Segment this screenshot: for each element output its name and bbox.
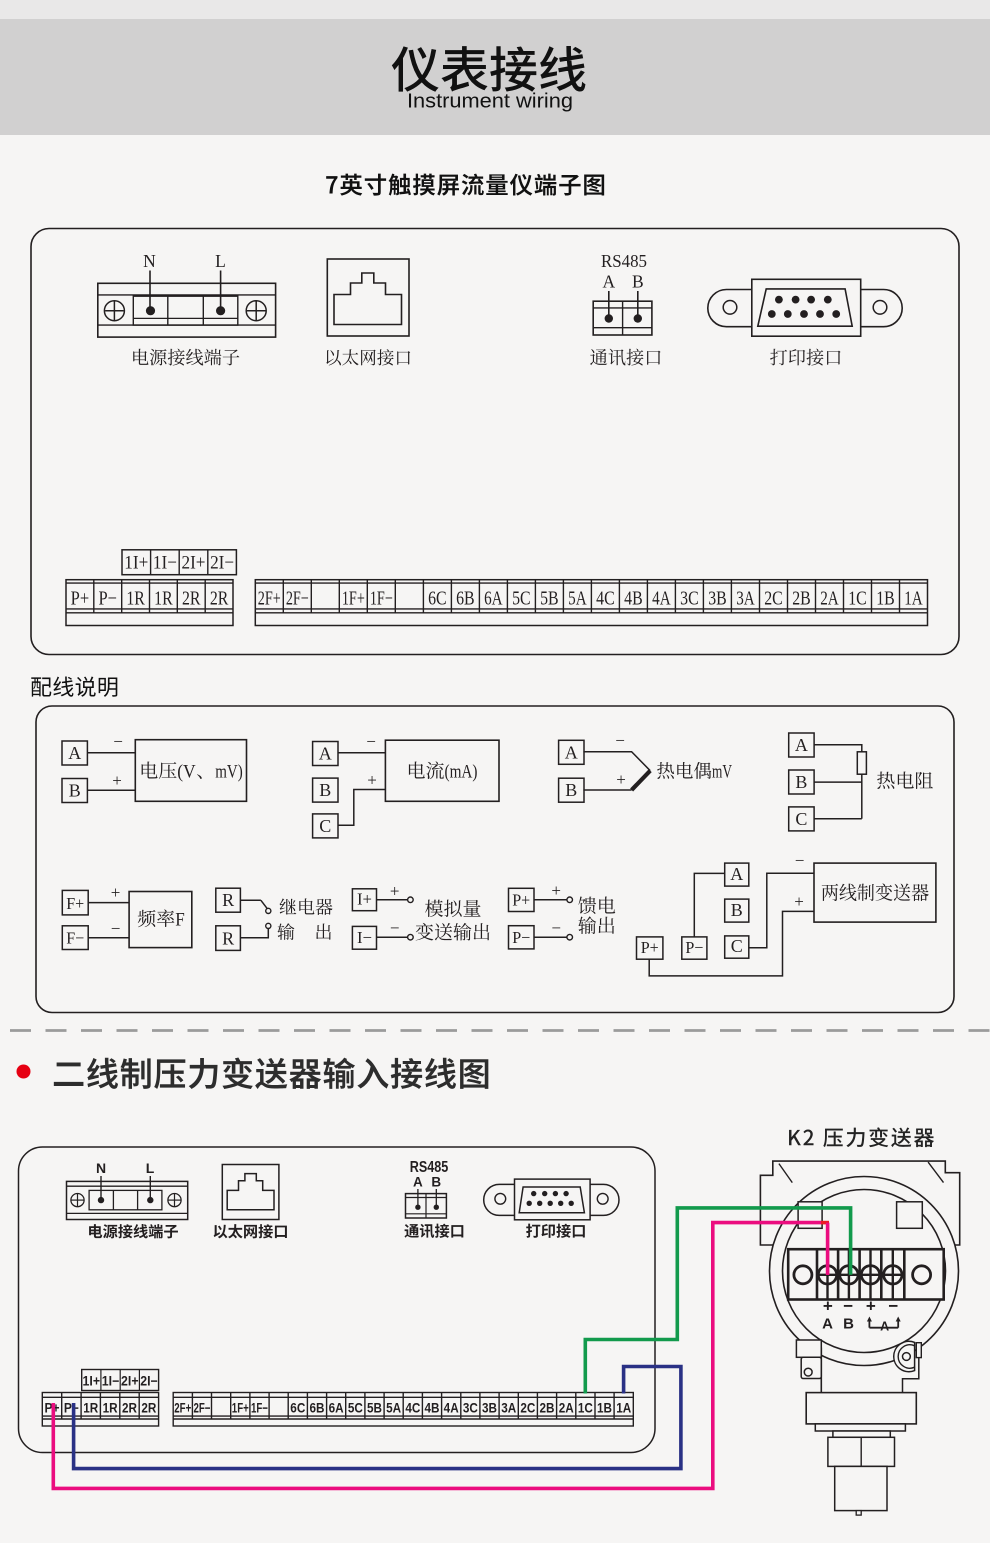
svg-text:1A: 1A [904,588,923,610]
svg-text:3B: 3B [708,588,727,610]
svg-text:P−: P− [99,588,118,610]
svg-text:2R: 2R [141,1401,156,1416]
svg-text:1F+: 1F+ [342,588,365,610]
svg-text:2B: 2B [792,588,811,610]
svg-text:+: + [866,1297,876,1316]
svg-text:2F+: 2F+ [174,1401,191,1416]
svg-text:N: N [143,251,156,271]
svg-text:2R: 2R [210,588,229,610]
svg-text:1R: 1R [103,1401,118,1416]
svg-text:P+: P+ [512,891,530,910]
svg-text:1I−: 1I− [102,1374,120,1389]
svg-text:I−: I− [357,928,372,947]
svg-text:B: B [565,780,577,800]
svg-text:4C: 4C [596,588,615,610]
svg-text:A: A [730,864,743,884]
svg-text:1F−: 1F− [370,588,393,610]
svg-text:−: − [366,732,376,751]
svg-text:2B: 2B [540,1401,555,1416]
svg-text:I+: I+ [357,890,372,909]
svg-text:(V: (V [177,762,196,783]
svg-text:(mA): (mA) [445,762,478,783]
svg-text:RS485: RS485 [601,251,647,271]
svg-text:A: A [602,272,615,292]
svg-text:+: + [794,892,804,911]
svg-text:−: − [843,1297,853,1316]
svg-text:1I−: 1I− [153,553,177,574]
svg-text:mV: mV [712,762,732,783]
svg-text:−: − [888,1297,898,1316]
svg-text:3B: 3B [482,1401,497,1416]
svg-text:B: B [795,772,807,792]
svg-text:mV): mV) [215,762,243,783]
svg-text:5C: 5C [348,1401,363,1416]
svg-text:P−: P− [685,938,703,957]
svg-text:−: − [113,732,123,751]
svg-text:B: B [843,1316,854,1333]
svg-text:1B: 1B [597,1401,612,1416]
svg-text:5B: 5B [540,588,559,610]
svg-text:1F−: 1F− [251,1401,268,1416]
svg-text:+: + [111,883,121,902]
svg-text:P−: P− [512,928,530,947]
svg-text:L: L [146,1160,155,1176]
svg-text:6C: 6C [290,1401,305,1416]
svg-text:C: C [731,936,743,956]
svg-text:5A: 5A [386,1401,401,1416]
svg-text:−: − [390,919,400,938]
svg-text:4B: 4B [624,588,643,610]
svg-text:A: A [822,1316,833,1333]
svg-text:2A: 2A [559,1401,574,1416]
svg-text:2I−: 2I− [210,553,234,574]
svg-text:3C: 3C [463,1401,478,1416]
svg-text:B: B [431,1175,441,1190]
svg-text:+: + [823,1297,833,1316]
svg-text:RS485: RS485 [410,1159,449,1176]
svg-text:1C: 1C [578,1401,593,1416]
svg-text:5A: 5A [568,588,587,610]
svg-text:A: A [795,735,808,755]
svg-text:+: + [616,770,626,789]
svg-text:2I+: 2I+ [121,1374,139,1389]
svg-text:2C: 2C [764,588,783,610]
svg-text:+: + [551,881,561,900]
svg-text:2R: 2R [182,588,201,610]
svg-text:1F+: 1F+ [232,1401,249,1416]
svg-text:1C: 1C [848,588,867,610]
svg-text:+: + [390,882,400,901]
svg-text:6B: 6B [456,588,475,610]
svg-text:2F+: 2F+ [258,588,281,610]
svg-text:+: + [367,771,377,790]
svg-text:1R: 1R [154,588,173,610]
svg-text:3A: 3A [736,588,755,610]
svg-text:B: B [632,272,644,292]
svg-text:F−: F− [66,929,84,948]
svg-text:6C: 6C [428,588,447,610]
svg-text:1R: 1R [83,1401,98,1416]
svg-text:4A: 4A [444,1401,459,1416]
svg-text:B: B [319,780,331,800]
svg-text:3C: 3C [680,588,699,610]
svg-text:2C: 2C [520,1401,535,1416]
svg-text:1I+: 1I+ [83,1374,101,1389]
svg-text:6B: 6B [309,1401,324,1416]
svg-text:4B: 4B [425,1401,440,1416]
svg-text:4A: 4A [652,588,671,610]
svg-text:1R: 1R [126,588,145,610]
svg-text:L: L [215,251,226,271]
svg-text:−: − [551,919,561,938]
svg-text:2R: 2R [122,1401,137,1416]
svg-text:5C: 5C [512,588,531,610]
svg-text:6A: 6A [484,588,503,610]
svg-text:−: − [795,851,805,870]
svg-text:C: C [795,809,807,829]
svg-text:B: B [69,781,81,801]
svg-text:Instrument wiring: Instrument wiring [407,91,573,113]
svg-text:P+: P+ [71,588,90,610]
svg-text:2I+: 2I+ [182,553,206,574]
svg-text:6A: 6A [329,1401,344,1416]
svg-text:1B: 1B [876,588,895,610]
svg-text:2F−: 2F− [286,588,309,610]
svg-text:R: R [222,890,234,910]
svg-text:B: B [731,900,743,920]
svg-text:−: − [111,919,121,938]
svg-text:1A: 1A [616,1401,631,1416]
svg-text:3A: 3A [501,1401,516,1416]
svg-text:F: F [175,910,185,931]
svg-text:2A: 2A [820,588,839,610]
svg-text:P−: P− [64,1401,79,1416]
svg-text:R: R [222,928,234,948]
svg-text:4C: 4C [405,1401,420,1416]
svg-text:A: A [565,742,578,762]
svg-text:C: C [319,816,331,836]
svg-text:1I+: 1I+ [124,553,148,574]
svg-text:N: N [96,1160,106,1176]
svg-text:2F−: 2F− [193,1401,210,1416]
svg-text:−: − [615,731,625,750]
svg-text:5B: 5B [367,1401,382,1416]
svg-text:+: + [112,771,122,790]
svg-text:F+: F+ [66,894,84,913]
svg-text:A: A [413,1175,423,1190]
svg-text:A: A [68,743,81,763]
svg-text:2I−: 2I− [140,1374,158,1389]
svg-text:A: A [880,1320,889,1334]
svg-text:A: A [319,744,332,764]
svg-text:P+: P+ [641,938,659,957]
